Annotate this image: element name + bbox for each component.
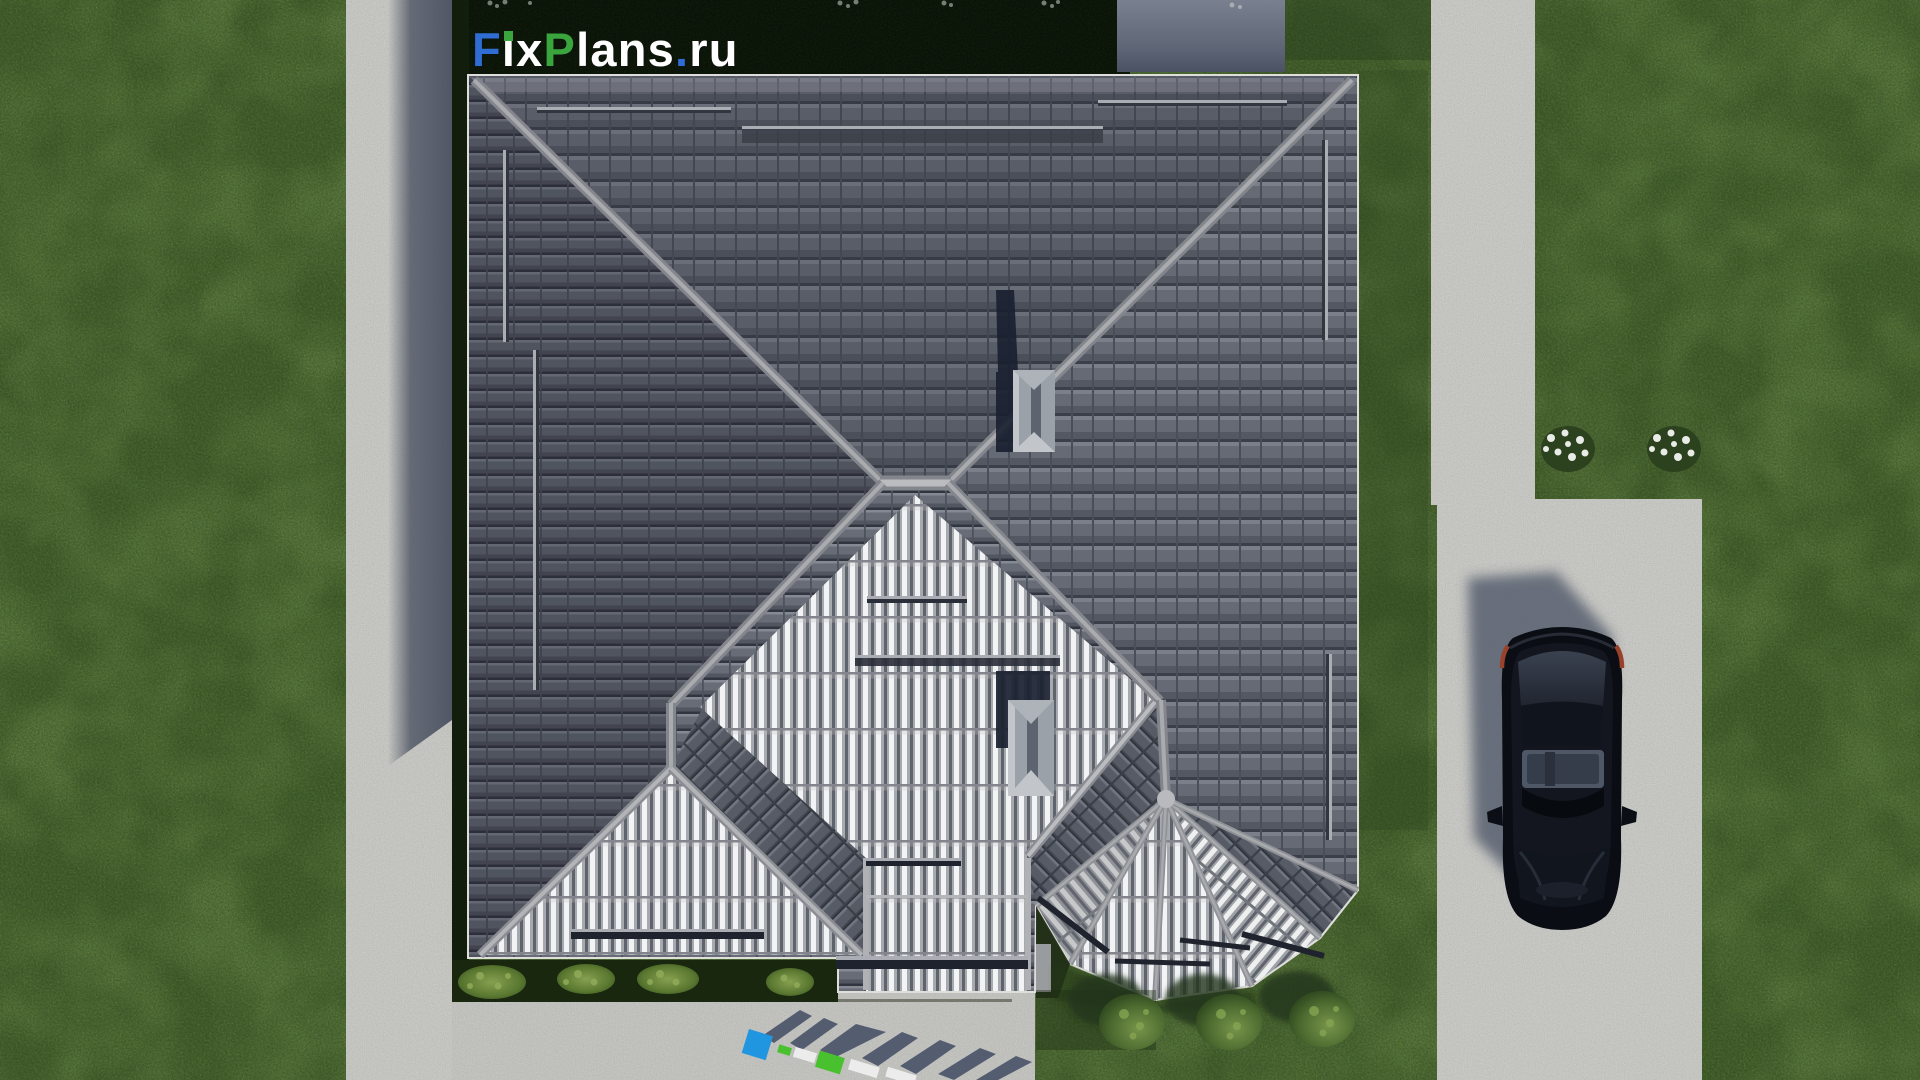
svg-text:FixPlans.ru: FixPlans.ru xyxy=(472,23,739,76)
